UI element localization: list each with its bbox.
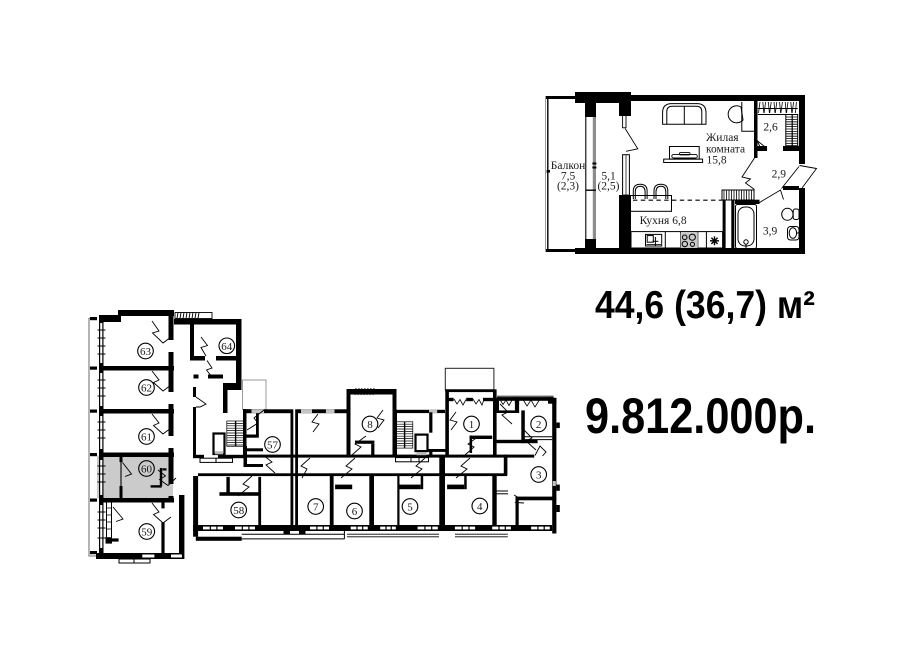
svg-text:59: 59: [141, 527, 153, 539]
svg-text:2: 2: [536, 419, 542, 431]
svg-text:2,9: 2,9: [772, 169, 787, 181]
svg-text:(2,5): (2,5): [597, 181, 619, 193]
svg-text:Жилая: Жилая: [706, 132, 739, 144]
svg-text:7: 7: [313, 502, 319, 514]
svg-text:Кухня 6,8: Кухня 6,8: [640, 215, 687, 227]
svg-text:44,6 (36,7) м²: 44,6 (36,7) м²: [595, 284, 815, 327]
svg-text:(2,3): (2,3): [557, 181, 579, 193]
svg-text:62: 62: [141, 383, 152, 395]
svg-text:3: 3: [536, 470, 542, 482]
svg-text:58: 58: [233, 505, 245, 517]
svg-text:61: 61: [141, 432, 152, 444]
svg-text:6: 6: [352, 506, 358, 518]
svg-text:60: 60: [141, 464, 153, 476]
svg-text:8: 8: [367, 419, 373, 431]
svg-text:2,6: 2,6: [763, 122, 778, 134]
svg-text:5: 5: [407, 502, 413, 514]
svg-text:3,9: 3,9: [763, 225, 778, 237]
svg-text:9.812.000р.: 9.812.000р.: [585, 388, 816, 444]
svg-text:63: 63: [140, 346, 152, 358]
svg-text:57: 57: [267, 440, 279, 452]
svg-text:4: 4: [477, 501, 483, 513]
svg-text:1: 1: [469, 419, 475, 431]
svg-text:15,8: 15,8: [707, 154, 727, 166]
svg-text:64: 64: [221, 341, 233, 353]
